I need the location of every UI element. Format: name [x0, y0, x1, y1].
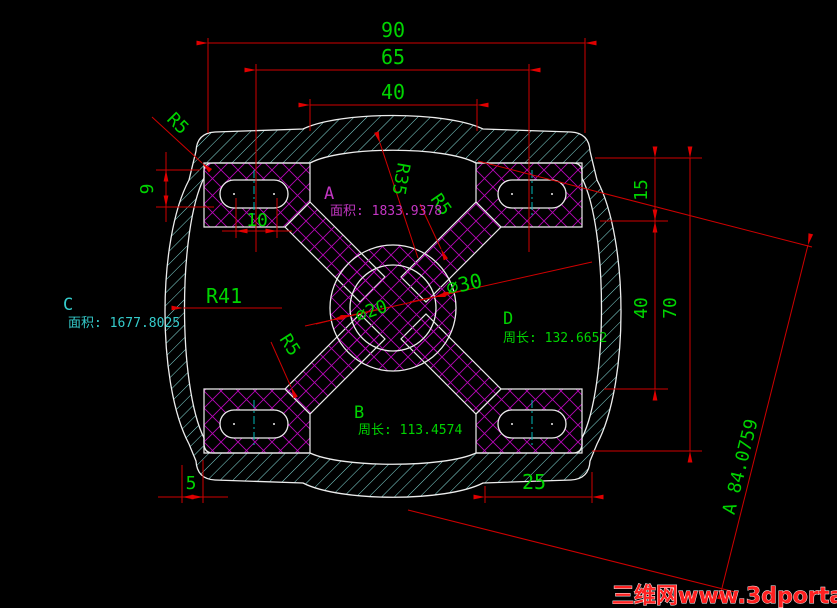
dim-90: 90: [381, 18, 405, 42]
dim-r5-c: R5: [275, 330, 304, 360]
dim-40-top: 40: [381, 80, 405, 104]
dim-r5-topleft: R5: [162, 109, 192, 139]
hub-boss-circle: [330, 245, 456, 371]
info-region-a: 面积: 1833.9378: [330, 204, 442, 219]
dim-r41: R41: [206, 284, 242, 308]
dim-diagonal: A 84.0759: [719, 417, 763, 517]
label-region-b: B: [354, 403, 364, 423]
label-region-d: D: [503, 309, 513, 329]
info-region-b: 周长: 113.4574: [358, 423, 462, 438]
dim-10: 10: [246, 210, 268, 231]
info-region-d: 周长: 132.6652: [503, 331, 607, 346]
label-region-c: C: [63, 295, 73, 315]
dim-40-right: 40: [631, 297, 652, 319]
label-region-a: A: [324, 184, 334, 204]
cad-viewport[interactable]: 90 65 40 10 9 5 25 15 40 70 A 84.0759 R5…: [0, 0, 837, 608]
dim-25: 25: [522, 470, 546, 494]
dim-70: 70: [660, 297, 681, 319]
dim-15: 15: [631, 179, 652, 201]
dim-65: 65: [381, 45, 405, 69]
drawing-canvas[interactable]: 90 65 40 10 9 5 25 15 40 70 A 84.0759 R5…: [0, 0, 837, 608]
watermark: 三维网www.3dportal.cn: [612, 583, 837, 608]
dim-5: 5: [186, 473, 197, 494]
info-region-c: 面积: 1677.8025: [68, 316, 180, 331]
dimension-lines: [152, 38, 812, 592]
dim-r35: R35: [387, 161, 413, 197]
dim-9: 9: [137, 184, 158, 195]
